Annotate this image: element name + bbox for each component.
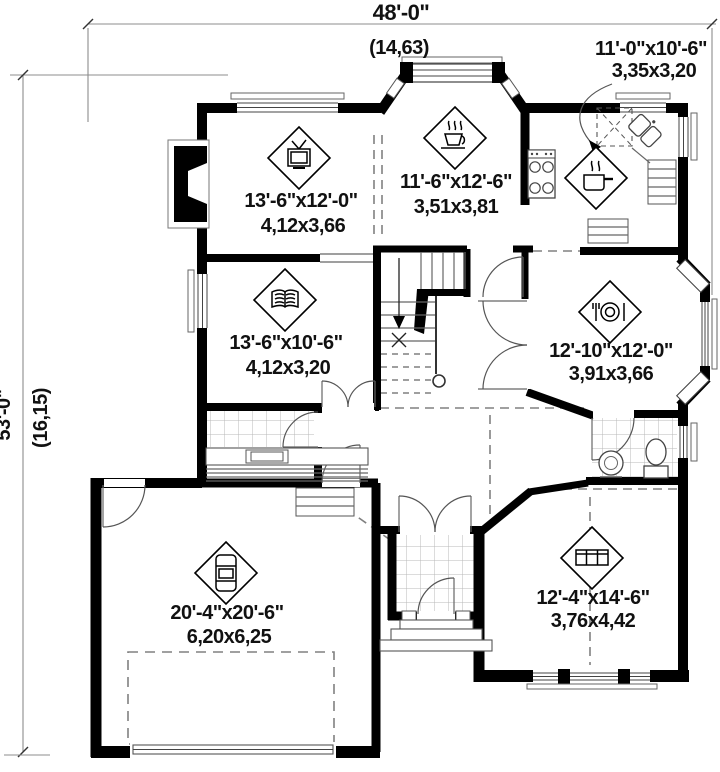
overall-depth-m: (16,15) [30,388,52,448]
kitchen-right-window [676,113,697,160]
car-icon [195,542,257,604]
laundry-fixtures [206,448,368,481]
family-room-size-ft: 12'-4"x14'-6" [536,587,649,609]
foyer-french-doors [399,496,471,535]
study-size-m: 4,12x3,20 [246,357,331,379]
dining-room-size-ft: 12'-10"x12'-0" [549,340,673,362]
dining-french-doors [478,301,530,389]
overall-depth-ft: 53'-0" [0,389,15,440]
dining-room-size-m: 3,91x3,66 [569,363,654,385]
hall-door [483,257,523,297]
cooking-pot-icon [565,147,627,209]
dining-bay-windows [677,260,717,405]
living-room-size-m: 4,12x3,66 [261,215,346,237]
garage-side-door [103,479,145,527]
dimension-lines [4,19,717,757]
corner-sink [628,110,666,148]
study-size-ft: 13'-6"x10'-6" [229,332,342,354]
kitchen-size-m: 3,35x3,20 [612,60,697,82]
living-room-size-ft: 13'-6"x12'-0" [244,190,357,212]
living-room-window [231,93,344,115]
dinette-size-ft: 11'-6"x12'-6" [400,171,512,193]
overall-width-m: (14,63) [369,37,429,59]
dinette-size-m: 3,51x3,81 [414,196,499,218]
mudroom-tiles [206,409,318,447]
kitchen-leader-arrow [580,84,612,154]
garage-steps [296,488,354,516]
toilet [644,439,668,478]
kitchen-top-window [616,93,670,115]
open-book-icon [254,269,316,331]
family-room-size-m: 3,76x4,42 [551,610,636,632]
garage-parking-outline [128,652,334,744]
stove [528,150,555,198]
garage-door [130,742,336,760]
study-french-doors [322,381,375,411]
garage-size-ft: 20'-4"x20'-6" [170,602,283,624]
study-left-window [188,270,210,332]
place-setting-icon [579,281,641,343]
floor-plan-drawing: 48'-0" (14,63) 53'-0" (16,15) 11'-0"x10'… [0,0,720,772]
doors [103,257,634,621]
floor-plan-canvas: 48'-0" (14,63) 53'-0" (16,15) 11'-0"x10'… [0,0,720,772]
dinette-bay-window [387,57,520,98]
family-room-windows [527,669,657,689]
sofa-icon [561,527,623,589]
foyer-tiles [394,533,476,611]
powder-room-window [677,423,697,461]
overall-width-ft: 48'-0" [373,0,430,25]
kitchen-size-ft: 11'-0"x10'-6" [595,38,707,60]
garage-size-m: 6,20x6,25 [187,626,272,648]
tv-icon [268,127,330,189]
coffee-cup-icon [424,107,486,169]
fireplace [168,140,209,228]
